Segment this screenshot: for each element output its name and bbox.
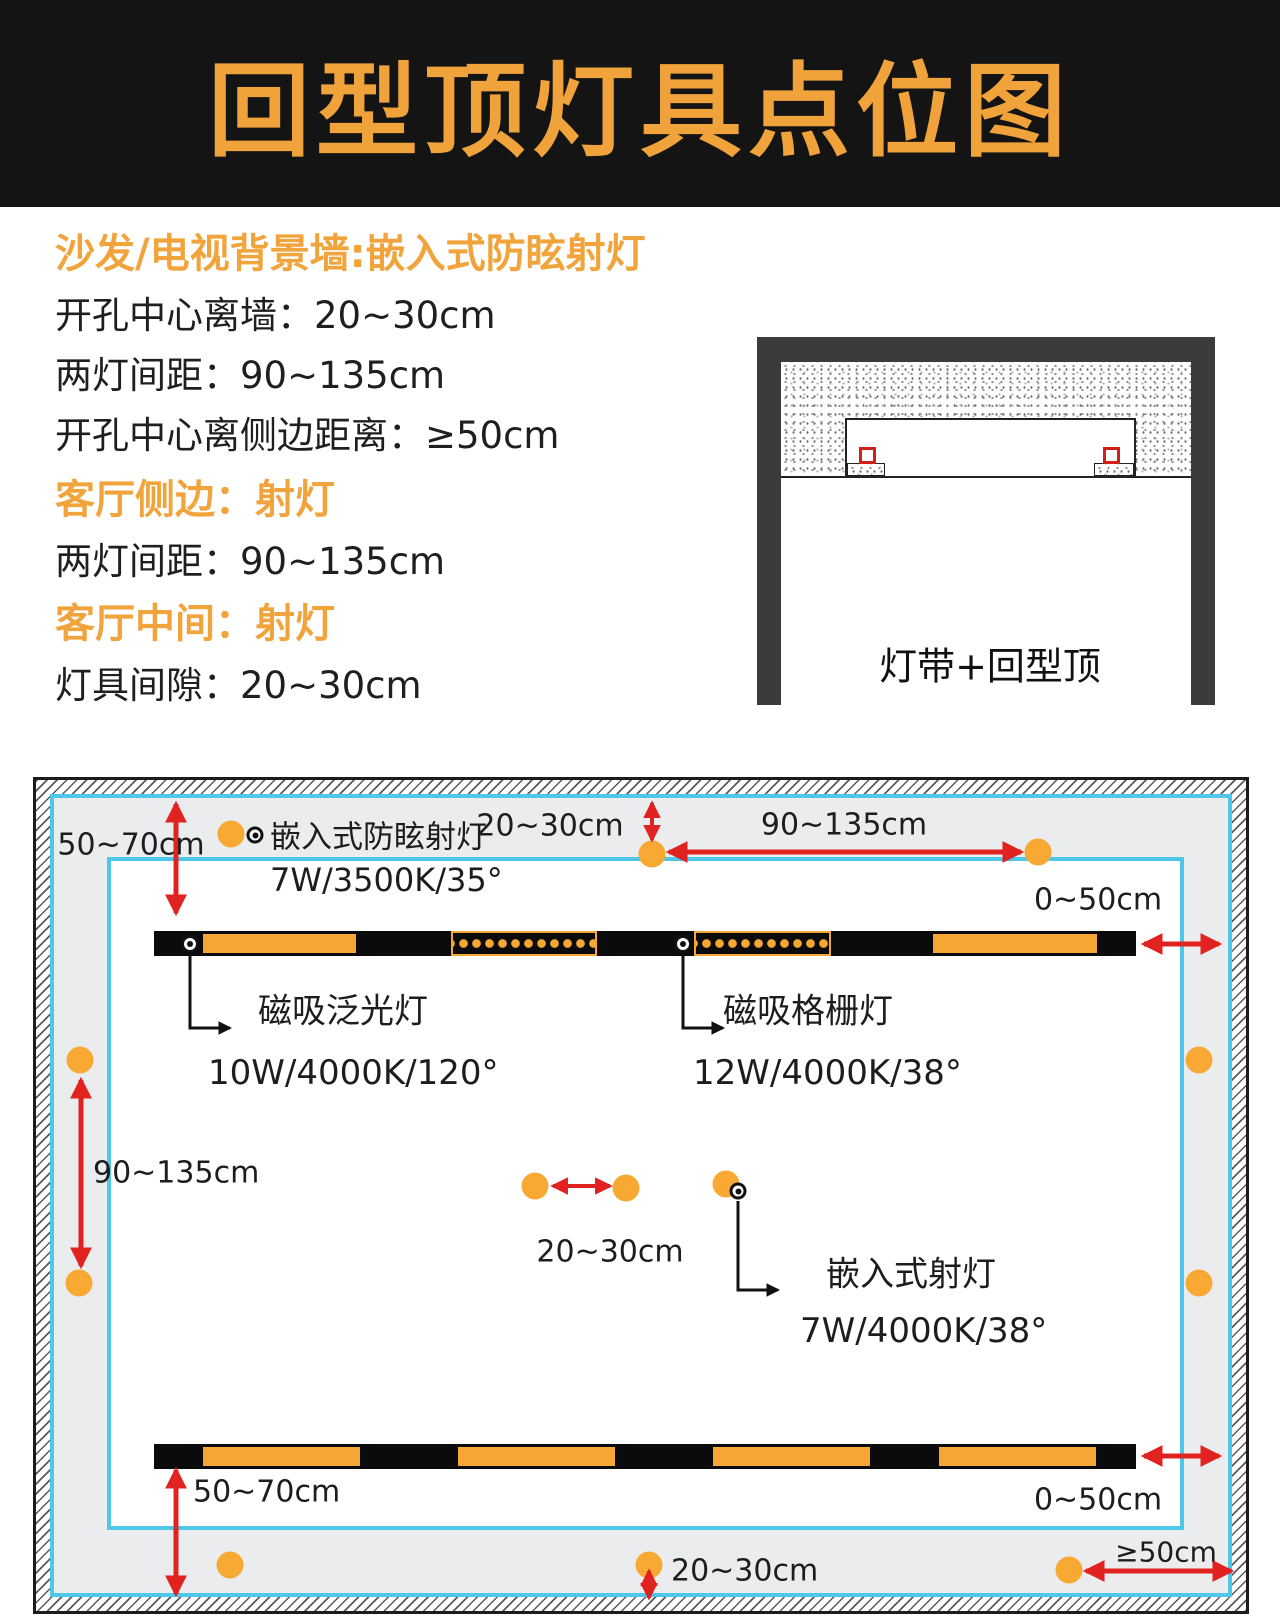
flood-light-segment [713,1447,870,1466]
section-top-wall [757,337,1215,362]
callout-label-flood: 磁吸泛光灯 [258,984,428,1033]
callout-label-recessed: 嵌入式射灯 [826,1247,996,1296]
magnetic-track-top [154,931,1136,956]
spotlight-dot [1186,1047,1213,1074]
section-caption: 灯带+回型顶 [879,636,1101,691]
section-ledge-right [1094,463,1134,476]
label-bottom-left: 50~70cm [193,1475,340,1510]
spec-heading-sofa-wall: 沙发/电视背景墙:嵌入式防眩射灯 [55,221,646,279]
label-top-left: 50~70cm [57,828,204,863]
grille-light-segment [451,931,597,956]
spotlight-dot [1056,1557,1083,1584]
label-spacing-top: 90~135cm [761,808,927,843]
spotlight-dot [613,1175,640,1202]
grille-light-segment [694,931,831,956]
spotlight-dot [639,841,666,868]
spotlight-dot [218,821,245,848]
spotlight-dot [66,1270,93,1297]
label-side-bottom: 0~50cm [1034,1483,1162,1518]
page-title: 回型顶灯具点位图 [208,30,1072,177]
flood-light-segment [203,1447,360,1466]
label-edge-min: ≥50cm [1115,1536,1217,1569]
callout-label-grille: 磁吸格栅灯 [723,984,893,1033]
section-right-wall [1191,337,1215,705]
spotlight-dot [1025,839,1052,866]
callout-spec-recessed: 7W/4000K/38° [800,1311,1047,1351]
spec-line-fixture-gap: 灯具间隙：20~30cm [55,655,422,709]
callout-spec-flood: 10W/4000K/120° [208,1053,499,1093]
spotlight-dot [67,1047,94,1074]
legend-spec: 7W/3500K/35° [270,861,503,899]
spec-line-lamp-spacing-2: 两灯间距：90~135cm [55,531,445,585]
section-left-wall [757,337,781,705]
section-ledge-left [847,463,885,476]
callout-anchor-icon [181,935,199,953]
spec-line-lamp-spacing-1: 两灯间距：90~135cm [55,345,445,399]
callout-spec-grille: 12W/4000K/38° [693,1053,962,1093]
section-concrete-band [781,362,1191,478]
section-recess-notch [845,418,1136,476]
target-icon [730,1183,747,1200]
ceiling-section-diagram: 灯带+回型顶 [757,337,1215,705]
target-icon [247,827,264,844]
label-side-left: 90~135cm [93,1156,259,1191]
magnetic-track-bottom [154,1444,1136,1469]
spec-heading-living-center: 客厅中间：射灯 [55,591,335,649]
spotlight-dot [636,1552,663,1579]
spec-line-hole-to-wall: 开孔中心离墙：20~30cm [55,285,496,339]
spec-heading-living-side: 客厅侧边：射灯 [55,467,335,525]
header-banner: 回型顶灯具点位图 [0,0,1280,207]
spotlight-dot [522,1173,549,1200]
label-side-top: 0~50cm [1034,883,1162,918]
spec-line-hole-to-side: 开孔中心离侧边距离：≥50cm [55,405,559,459]
label-wall-gap-top: 20~30cm [476,809,623,844]
legend-label: 嵌入式防眩射灯 [270,812,487,857]
flood-light-segment [458,1447,615,1466]
led-strip-icon [859,447,876,464]
inner-ceiling-recess [107,857,1184,1530]
label-center-gap: 20~30cm [536,1235,683,1270]
led-strip-icon [1103,447,1120,464]
floor-plan: 50~70cm 嵌入式防眩射灯 7W/3500K/35° 20~30cm 90~… [33,777,1249,1614]
flood-light-segment [203,934,356,953]
flood-light-segment [939,1447,1096,1466]
flood-light-segment [933,934,1097,953]
spotlight-dot [1186,1270,1213,1297]
infographic-page: 回型顶灯具点位图 沙发/电视背景墙:嵌入式防眩射灯 开孔中心离墙：20~30cm… [0,0,1280,1620]
callout-anchor-icon [674,935,692,953]
spotlight-dot [217,1552,244,1579]
label-wall-gap-bottom: 20~30cm [671,1554,818,1589]
